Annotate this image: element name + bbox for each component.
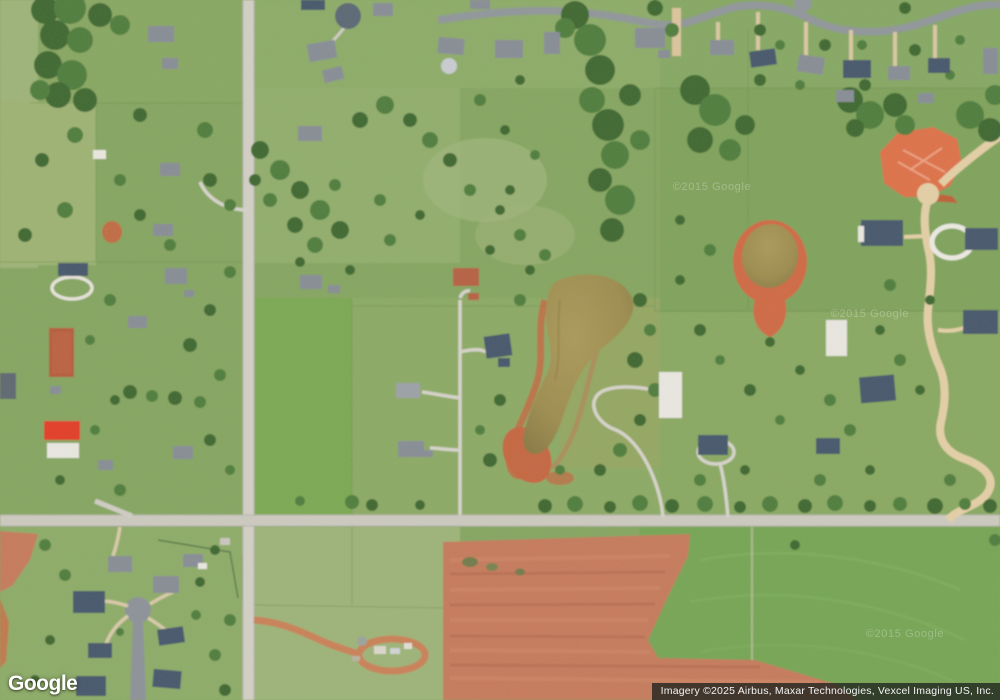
attribution-text: Imagery ©2025 Airbus, Maxar Technologies… (661, 685, 994, 697)
map-container: ©2015 Google ©2015 Google ©2015 Google G… (0, 0, 1000, 700)
satellite-imagery[interactable]: ©2015 Google ©2015 Google ©2015 Google (0, 0, 1000, 700)
google-watermark: ©2015 Google (831, 308, 909, 320)
google-watermark: ©2015 Google (673, 181, 751, 193)
attribution-bar: Imagery ©2025 Airbus, Maxar Technologies… (652, 683, 1000, 700)
google-logo[interactable]: Google (8, 672, 77, 696)
imagery-grain (0, 0, 1000, 700)
google-watermark: ©2015 Google (866, 628, 944, 640)
